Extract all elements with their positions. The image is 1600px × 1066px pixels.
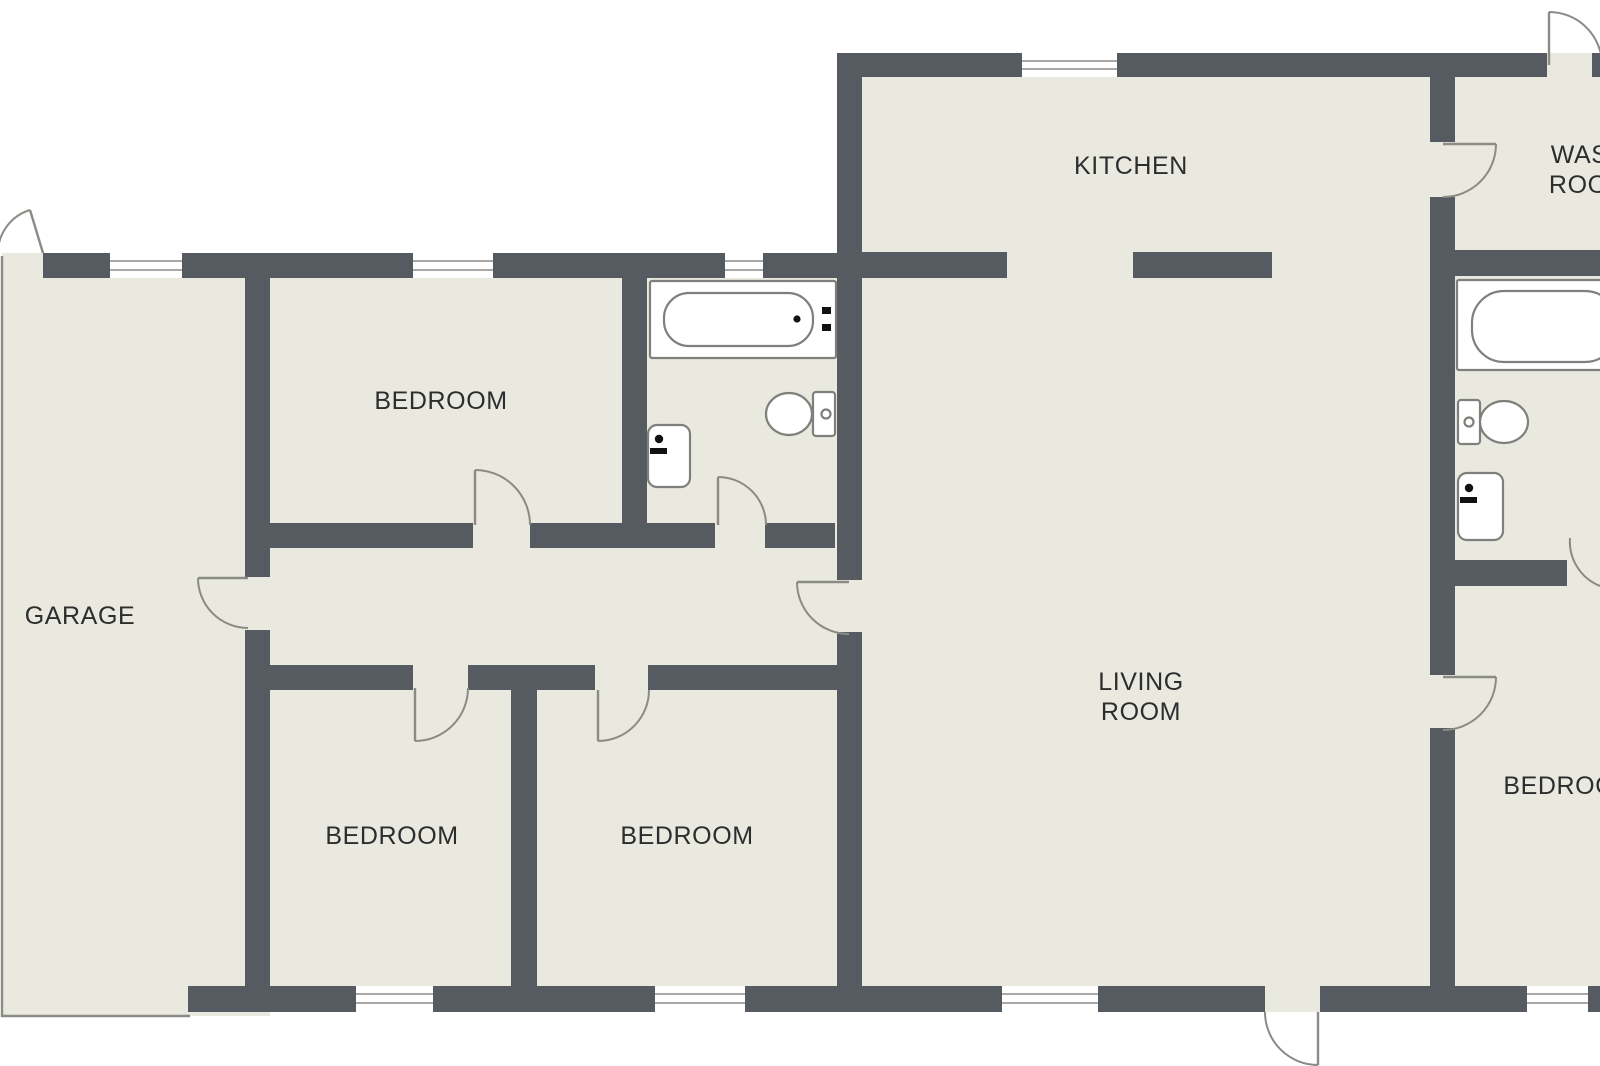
window (110, 253, 182, 278)
room-label-bedroom-bottom-left: BEDROOM (325, 821, 458, 851)
bathtub-icon (650, 281, 836, 358)
floor-plan-drawing (0, 0, 1600, 1066)
door-garage-exterior (0, 210, 43, 253)
window (1527, 986, 1588, 1012)
wall-bedroom-bathroom-divider (622, 278, 647, 523)
room-label-bedroom-bottom-middle: BEDROOM (620, 821, 753, 851)
sink-icon (648, 425, 690, 487)
wall-kitchen-living-divider-b (1133, 252, 1272, 278)
door-opening-bedroom-bottom-left (413, 665, 468, 690)
door-main-entry (1265, 1012, 1318, 1065)
door-opening-bathroom-top (715, 523, 765, 548)
room-garage-floor (2, 253, 270, 1016)
toilet-icon (1458, 400, 1528, 444)
window (655, 986, 745, 1012)
door-opening-kitchen-washroom (1430, 142, 1455, 197)
wall-garage-east (245, 278, 270, 986)
door-opening-bedroom-right (1430, 675, 1455, 728)
window (413, 253, 493, 278)
door-opening-bedroom-top-left (473, 523, 530, 548)
wall-living-west (837, 77, 862, 986)
room-label-garage: GARAGE (25, 601, 136, 631)
toilet-icon (766, 392, 835, 436)
room-label-kitchen: KITCHEN (1074, 151, 1188, 181)
wall-top-kitchen-washroom (837, 53, 1600, 77)
wall-kitchen-living-divider-a (837, 252, 1007, 278)
wall-between-bottom-bedrooms (511, 690, 537, 986)
sink-icon (1458, 473, 1503, 540)
door-opening-hall-living (837, 580, 862, 632)
wall-living-east (1430, 77, 1455, 986)
rooms-left-block-floor (245, 253, 862, 1012)
room-label-bedroom-top-left: BEDROOM (374, 386, 507, 416)
wall-hallway-south (245, 665, 862, 690)
room-label-bedroom-right: BEDROOM (1503, 771, 1600, 801)
door-opening-bedroom-bottom-middle (595, 665, 648, 690)
rooms-kitchen-living-floor (837, 53, 1455, 1012)
door-opening-main-entry (1265, 986, 1320, 1012)
window (356, 986, 433, 1012)
door-opening-garage-hall (245, 577, 270, 630)
wall-washroom-bathroom-divider (1430, 250, 1600, 276)
floor-plan-page: GARAGE BEDROOM BEDROOM BEDROOM KITCHEN L… (0, 0, 1600, 1066)
door-opening-bathroom-right (1567, 560, 1600, 586)
window (725, 253, 763, 278)
bathtub-icon (1457, 280, 1600, 370)
window (1022, 53, 1117, 77)
room-label-living-room: LIVING ROOM (1098, 667, 1184, 727)
room-label-wash-room: WASH ROOM (1549, 140, 1600, 200)
door-opening-washroom-exterior (1547, 53, 1592, 77)
window (1002, 986, 1098, 1012)
